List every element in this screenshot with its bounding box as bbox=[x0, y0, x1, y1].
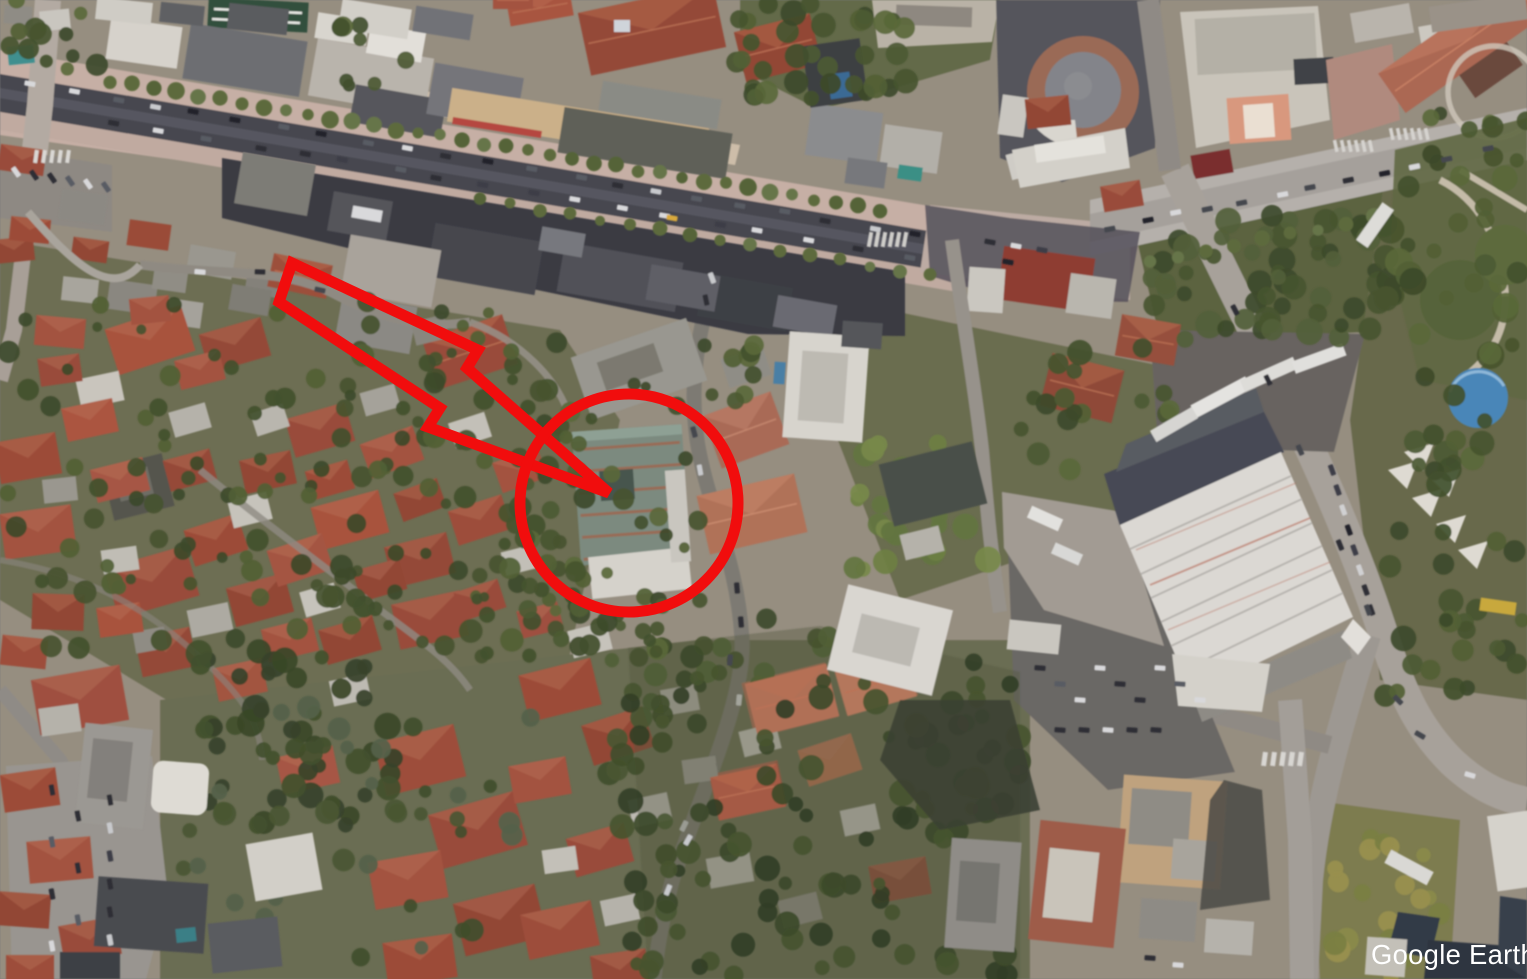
svg-text:Google Earth: Google Earth bbox=[1371, 939, 1527, 970]
